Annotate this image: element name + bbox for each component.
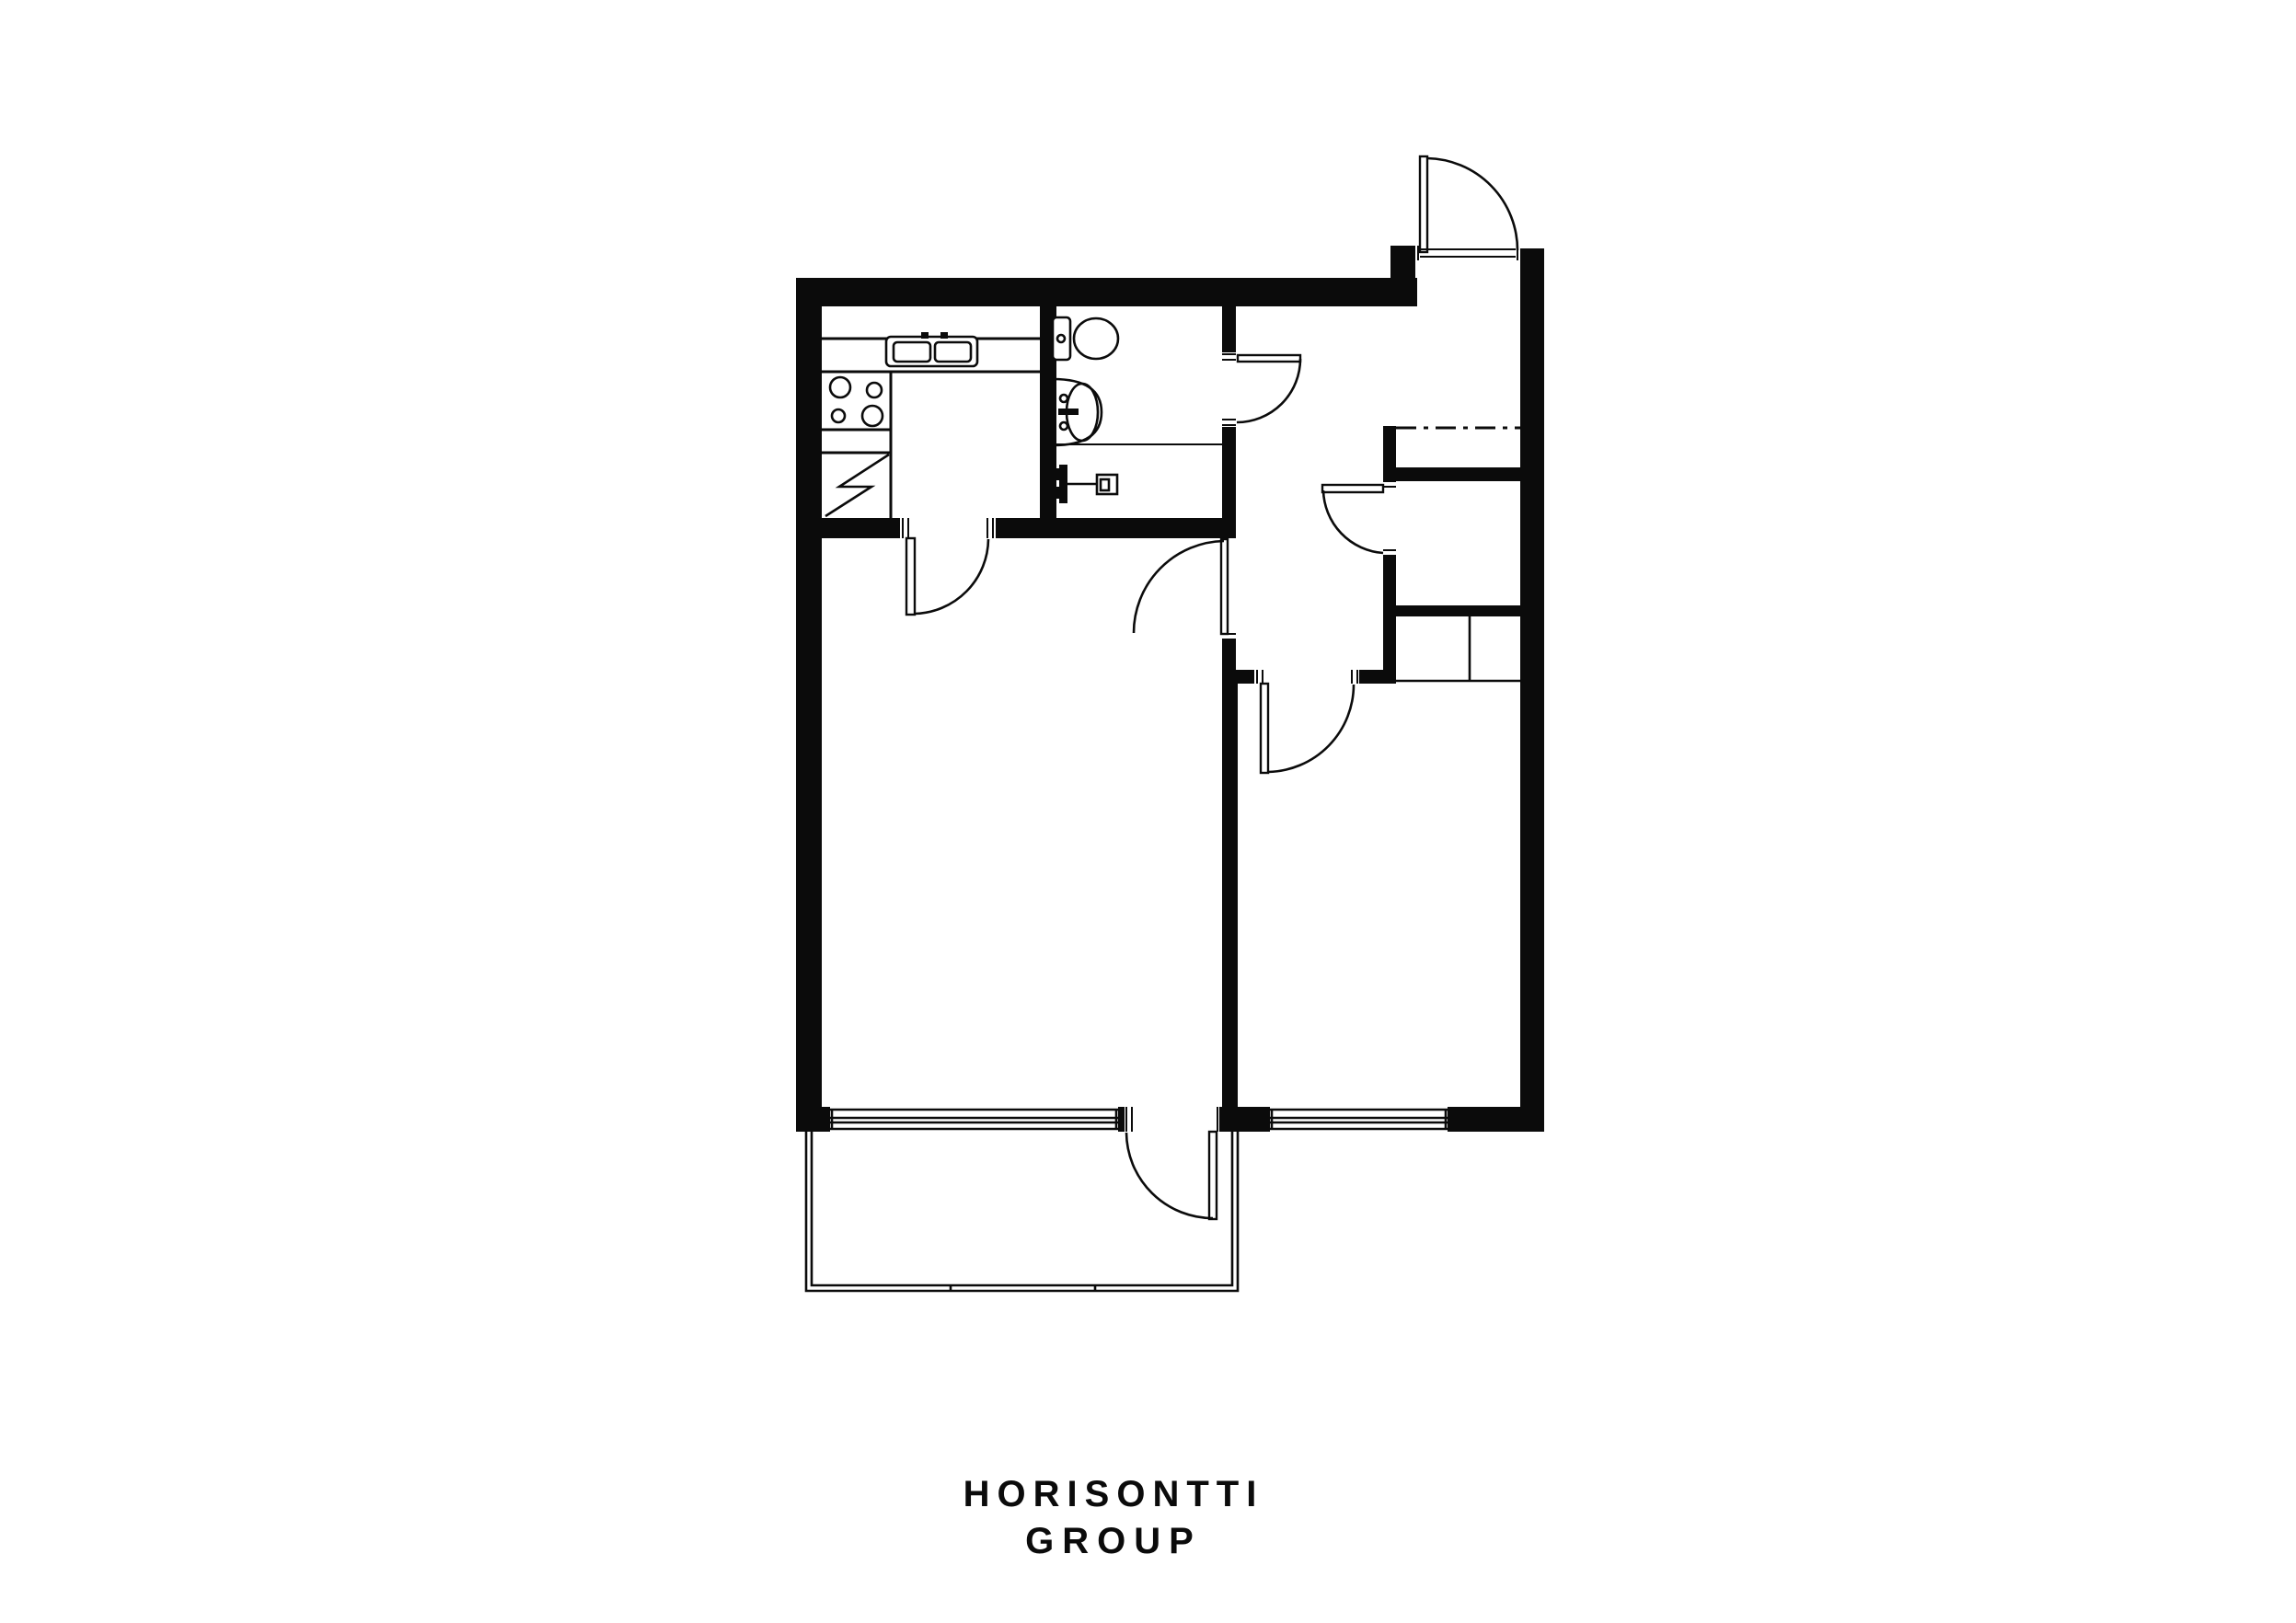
right-exterior-wall — [1520, 248, 1544, 1132]
bathroom-door-leaf — [1238, 355, 1300, 362]
kitchen-faucet — [921, 332, 929, 339]
balcony-railing-inner — [812, 1132, 1232, 1285]
hall-closet-wall-lower — [1383, 555, 1396, 684]
bedroom-door-swing — [1268, 685, 1354, 772]
kitchen-door-swing — [915, 539, 988, 614]
kitchen-door-leaf — [906, 538, 915, 615]
stove-burner — [832, 409, 845, 422]
floor-plan-layer — [796, 156, 1544, 1291]
stove-burner — [867, 383, 882, 397]
balcony-door-leaf — [1209, 1132, 1217, 1219]
hall-living-wall-stub — [1222, 639, 1236, 684]
entrance-door-swing — [1427, 158, 1517, 250]
living-room-door-swing — [1134, 541, 1224, 633]
balcony-railing-outer — [806, 1132, 1238, 1291]
kitchen-door-opening — [900, 516, 996, 540]
washer-valve — [1052, 468, 1059, 480]
closet-door-swing — [1323, 490, 1383, 553]
floor-plan-page: HORISONTTI GROUP — [0, 0, 2296, 1623]
brand-name-line2: GROUP — [1025, 1521, 1202, 1561]
bedroom-door-leaf — [1261, 684, 1268, 773]
living-room-door-leaf — [1221, 539, 1228, 634]
entrance-door-leaf — [1420, 156, 1427, 252]
hall-closet-wall-upper — [1383, 426, 1396, 480]
balcony-door-opening — [1125, 1104, 1219, 1134]
closet-south-wall — [1396, 605, 1523, 616]
bathroom-east-wall-lower — [1222, 427, 1236, 518]
stove-burner — [830, 377, 850, 397]
entry-jog-wall — [1390, 246, 1415, 306]
toilet-bowl — [1074, 318, 1118, 359]
bathroom-door-swing — [1237, 359, 1300, 422]
fridge-symbol — [825, 455, 889, 516]
bathroom-sink-knob — [1060, 422, 1067, 430]
closet-north-wall — [1396, 467, 1523, 481]
kitchen-faucet — [940, 332, 948, 339]
top-exterior-wall — [796, 278, 1417, 306]
stove-burner — [862, 406, 883, 426]
bathroom-sink-knob — [1060, 395, 1067, 402]
floor-plan-drawing: HORISONTTI GROUP — [0, 0, 2296, 1623]
kitchen-bathroom-south-wall — [796, 518, 1236, 538]
balcony-door-swing — [1126, 1133, 1213, 1218]
washer-manifold — [1059, 465, 1067, 503]
left-exterior-wall — [796, 278, 822, 1132]
washer-valve — [1052, 487, 1059, 499]
bathroom-east-wall-upper — [1222, 306, 1236, 352]
hall-south-wall-left — [1236, 670, 1254, 684]
brand-name-line1: HORISONTTI — [963, 1474, 1264, 1514]
closet-door-leaf — [1322, 485, 1383, 492]
living-bedroom-divider-wall — [1222, 684, 1238, 1107]
toilet-tank — [1053, 317, 1070, 360]
bathroom-faucet — [1058, 409, 1079, 415]
